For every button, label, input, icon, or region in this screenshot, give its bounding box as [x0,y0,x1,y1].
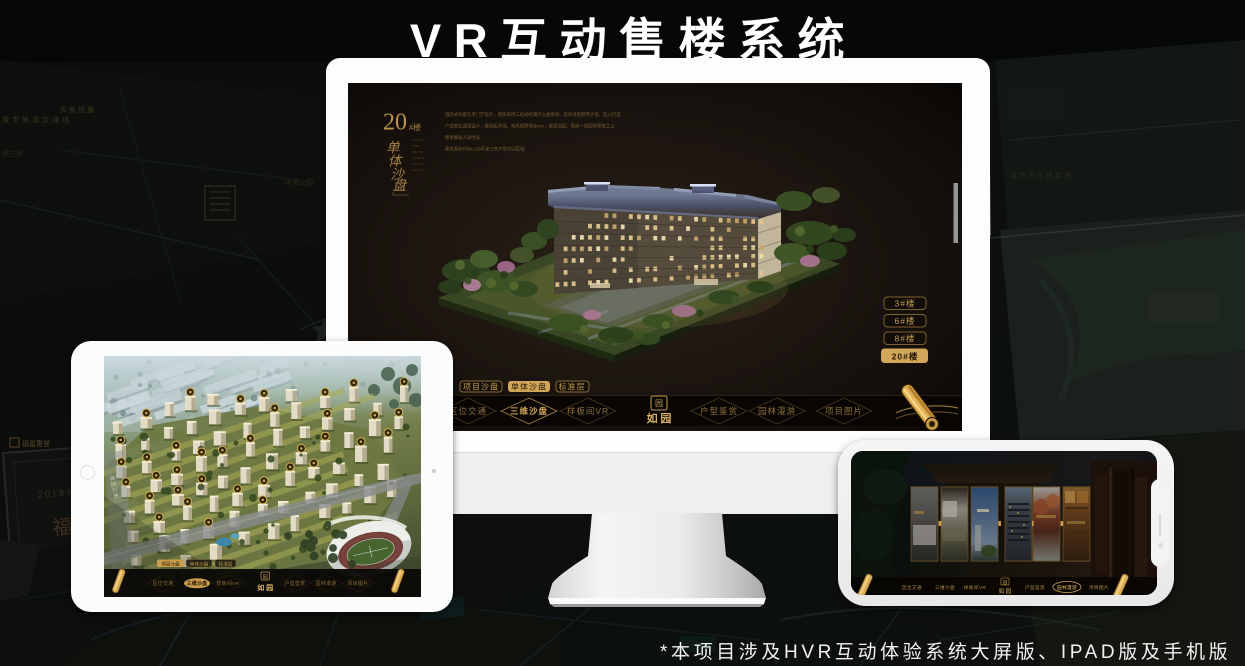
svg-text:三维沙盘: 三维沙盘 [510,406,548,416]
svg-text:户型鉴赏: 户型鉴赏 [700,406,738,416]
svg-text:20#楼: 20#楼 [892,352,919,362]
svg-text:标准层: 标准层 [559,382,586,392]
svg-text:区位交通: 区位交通 [449,406,487,416]
svg-text:如 园: 如 园 [257,583,273,592]
svg-text:项目沙盘: 项目沙盘 [463,382,499,392]
svg-text:户型鉴赏: 户型鉴赏 [1025,584,1045,591]
svg-text:三维沙盘: 三维沙盘 [187,580,208,587]
svg-text:区位交通: 区位交通 [902,584,922,591]
svg-text:项目图片: 项目图片 [825,406,863,416]
svg-text:如 园: 如 园 [647,411,672,425]
svg-text:单体沙盘: 单体沙盘 [511,382,547,392]
svg-text:园林漫游: 园林漫游 [1057,584,1077,591]
svg-text:样板间VR: 样板间VR [217,580,240,587]
svg-text:6#楼: 6#楼 [895,316,916,326]
svg-text:3#楼: 3#楼 [895,299,916,309]
svg-text:样板间VR: 样板间VR [964,584,986,591]
svg-text:园林漫游: 园林漫游 [316,580,337,587]
svg-text:三维沙盘: 三维沙盘 [935,584,955,591]
svg-text:户型鉴赏: 户型鉴赏 [285,580,306,587]
svg-text:样板间VR: 样板间VR [567,406,609,416]
svg-text:园: 园 [263,575,268,581]
svg-text:项目图片: 项目图片 [1089,584,1109,591]
svg-text:园: 园 [655,399,663,408]
svg-text:园林漫游: 园林漫游 [758,406,796,416]
svg-text:标准层: 标准层 [219,560,233,567]
svg-text:如 园: 如 园 [999,587,1012,595]
svg-text:单体沙盘: 单体沙盘 [190,560,209,567]
svg-text:项目沙盘: 项目沙盘 [161,560,180,567]
svg-text:项目图片: 项目图片 [348,580,369,587]
svg-text:8#楼: 8#楼 [895,334,916,344]
svg-text:区位交通: 区位交通 [153,580,174,587]
